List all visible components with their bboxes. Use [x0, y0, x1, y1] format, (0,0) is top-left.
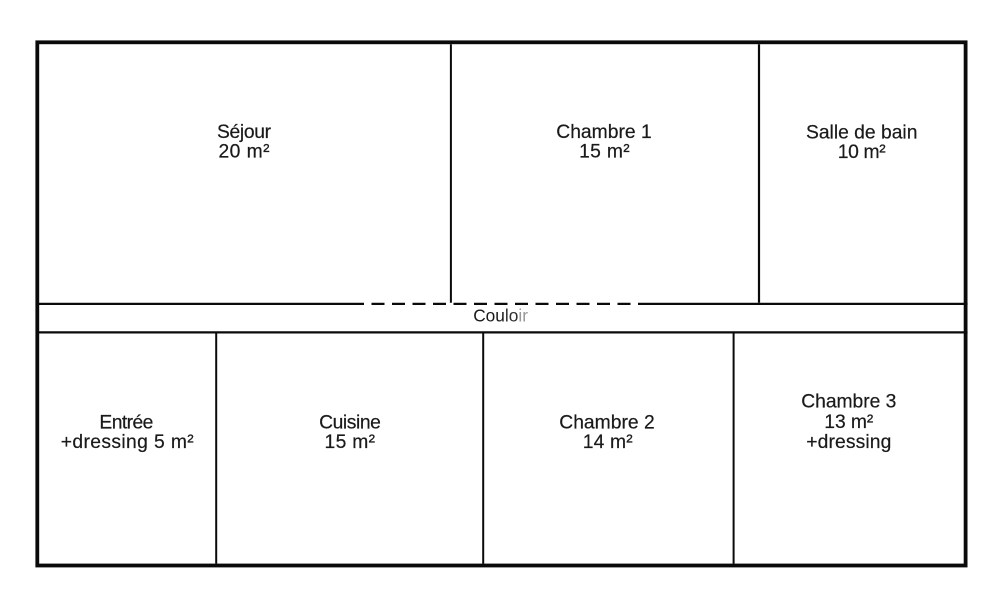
svg-text:+dressing 5 m²: +dressing 5 m² — [61, 432, 195, 453]
svg-text:20 m²: 20 m² — [219, 142, 271, 163]
svg-text:Chambre 2: Chambre 2 — [559, 412, 655, 433]
svg-text:15 m²: 15 m² — [325, 432, 376, 453]
svg-text:10 m²: 10 m² — [838, 142, 887, 163]
svg-text:Chambre 1: Chambre 1 — [556, 122, 652, 143]
svg-text:+dressing: +dressing — [806, 432, 891, 453]
svg-text:13 m²: 13 m² — [824, 412, 874, 433]
svg-text:Salle de bain: Salle de bain — [806, 122, 918, 143]
svg-text:Cuisine: Cuisine — [319, 412, 381, 433]
svg-text:Séjour: Séjour — [217, 122, 272, 143]
svg-text:Entrée: Entrée — [99, 412, 153, 433]
svg-text:Chambre 3: Chambre 3 — [801, 392, 896, 413]
svg-text:14 m²: 14 m² — [583, 432, 634, 453]
svg-text:Couloir: Couloir — [473, 305, 528, 325]
svg-text:15 m²: 15 m² — [579, 142, 630, 163]
